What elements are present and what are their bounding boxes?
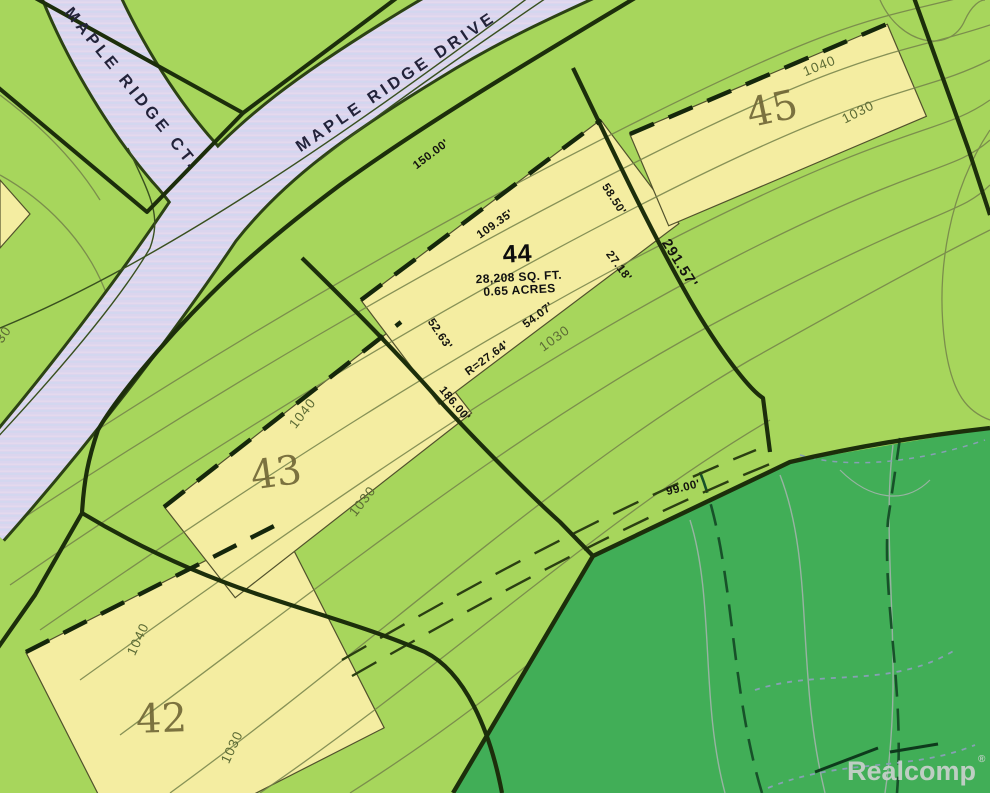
watermark: Realcomp ® <box>847 754 986 786</box>
watermark-text: Realcomp <box>847 756 976 786</box>
watermark-registered-icon: ® <box>978 754 986 765</box>
lot-number-44: 44 <box>502 239 533 269</box>
lot-number-43: 43 <box>248 447 305 500</box>
plat-map: MAPLE RIDGE CT. MAPLE RIDGE DRIVE 42 43 … <box>0 0 990 793</box>
lot-number-42: 42 <box>135 695 187 743</box>
